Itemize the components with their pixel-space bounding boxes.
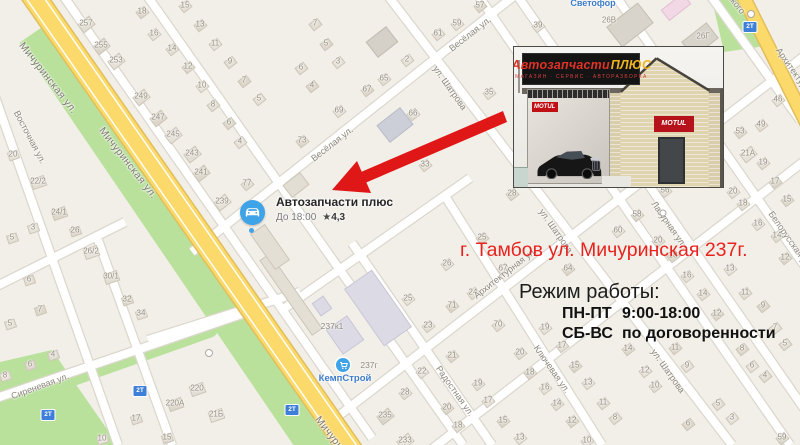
rating-star-icon: ★ (322, 212, 331, 223)
building-number: 15 (163, 433, 172, 442)
building-number: 11 (741, 288, 749, 297)
building-number: 18 (526, 368, 535, 377)
building-number: 26Г (696, 32, 709, 41)
building-number: 20 (729, 187, 738, 196)
schedule-hours: 9:00-18:00 (622, 304, 700, 324)
building-number: 11 (211, 39, 219, 48)
building-number: 5 (10, 233, 14, 242)
building-number: 4 (763, 371, 767, 380)
building-number: 77 (243, 179, 252, 188)
building-number: 17 (132, 414, 141, 423)
building-number: 46 (774, 95, 783, 104)
car-brand-logos-strip (528, 90, 610, 98)
building-number: 7 (38, 305, 42, 314)
building-number: 71 (448, 301, 457, 310)
building-number: 59 (778, 433, 787, 442)
store-sign: АвтозапчастиПЛЮС МАГАЗИН · СЕРВИС · АВТО… (522, 53, 640, 84)
building-number: 257 (79, 19, 92, 28)
store-sign-accent: ПЛЮС (611, 58, 651, 72)
map-pin-tail (249, 228, 254, 233)
area-label: 237г (360, 360, 377, 370)
building-number: 26 (71, 226, 80, 235)
motul-banner-logo: MOTUL (532, 102, 558, 112)
schedule-title: Режим работы: (519, 281, 660, 304)
poi-title: Автозапчасти плюс (276, 196, 393, 209)
building-number: 73 (298, 136, 307, 145)
building-number: 6 (299, 63, 303, 72)
building-number: 249 (134, 92, 147, 101)
building-number: 13 (584, 378, 593, 387)
junction-dot (205, 349, 213, 357)
building-number: 11 (599, 398, 607, 407)
building-number: 15 (783, 195, 792, 204)
car-icon (245, 205, 260, 220)
building-number: 12 (781, 253, 790, 262)
store-sign-main: Автозапчасти (513, 58, 610, 72)
building-number: 22 (418, 367, 427, 376)
photo-teal-fence (514, 167, 528, 188)
building-number: 17 (484, 396, 493, 405)
traffic-poi-dot (747, 10, 755, 18)
building-number: 4 (310, 81, 314, 90)
poi-rating: 4,3 (331, 212, 345, 223)
building-number: 20 (516, 348, 525, 357)
building-number: 21Б (209, 410, 223, 419)
building-number: 58 (633, 210, 642, 219)
building-number: 18 (454, 421, 463, 430)
building-number: 14 (168, 44, 177, 53)
building-number: 28 (401, 388, 410, 397)
building-number: 23 (424, 321, 433, 330)
poi-kempstroy[interactable]: КемпСтрой (319, 373, 372, 384)
building-number: 22/2 (30, 177, 46, 186)
building-number: 26 (443, 259, 452, 268)
building-number: 12 (641, 366, 650, 375)
building-number: 15 (571, 361, 580, 370)
building-number: 235 (378, 411, 391, 420)
building-number: 12 (568, 416, 577, 425)
building-number: 34 (137, 309, 146, 318)
building-number: 5 (783, 339, 787, 348)
building-number: 9 (228, 57, 232, 66)
building-number: 14 (624, 344, 633, 353)
building-number: 239 (215, 197, 228, 206)
building-number: 61 (434, 29, 443, 38)
building-number: 30/1 (103, 272, 119, 281)
building-number: 10 (98, 434, 107, 443)
building-number: 253 (109, 56, 122, 65)
building-number: 66 (409, 109, 418, 118)
shopping-cart-icon (339, 361, 348, 370)
building-number: 6 (28, 360, 32, 369)
map-pin-autoparts[interactable] (240, 200, 265, 225)
building-number: 16 (754, 219, 763, 228)
building-number: 6 (227, 118, 231, 127)
photo-door-window (658, 137, 685, 185)
building-number: 70 (494, 320, 503, 329)
schedule-hours: по договоренности (622, 324, 776, 344)
building-number: 26/2 (83, 247, 99, 256)
building-number: 32 (123, 295, 132, 304)
building-number: 2 (405, 55, 409, 64)
building-number: 57 (476, 1, 485, 10)
storefront-photo: MOTUL MOTUL АвтозапчастиПЛЮС МАГАЗИН · (513, 46, 724, 188)
photo-ad-banner: MOTUL (527, 89, 611, 184)
building-number: 241 (194, 168, 207, 177)
building-number: 220А (166, 399, 185, 408)
building-number: 60 (614, 226, 623, 235)
route-badge: 2Т (133, 385, 148, 397)
building-number: 3 (31, 223, 35, 232)
building-number: 19 (541, 323, 550, 332)
building-number: 59 (453, 19, 462, 28)
junction-dot (660, 210, 667, 217)
schedule-days: ПН-ПТ (562, 304, 622, 324)
building-number: 17 (771, 177, 780, 186)
building-number: 255 (94, 41, 107, 50)
poi-open-hours: До 18:00 (276, 212, 316, 223)
route-badge: 2Т (743, 21, 758, 33)
building-number: 10 (583, 436, 592, 445)
building-number: 39 (534, 21, 543, 30)
route-badge: 2Т (41, 409, 56, 421)
building-number: 6 (750, 361, 754, 370)
building-number: 53 (736, 127, 745, 136)
kempstroy-poi-icon[interactable] (336, 358, 350, 372)
building-number: 5 (716, 399, 720, 408)
building-number: 7 (242, 76, 246, 85)
area-label: 237к1 (321, 321, 344, 331)
schedule-rows: ПН-ПТ 9:00-18:00 СБ-ВС по договоренности (562, 304, 776, 344)
route-badge: 2Т (285, 404, 300, 416)
building-number: 67 (363, 85, 372, 94)
building-number: 8 (740, 344, 744, 353)
motul-wall-sign: MOTUL (654, 116, 694, 133)
building-number: 8 (3, 371, 7, 380)
building-number: 35 (485, 88, 494, 97)
building-number: 64 (564, 264, 573, 273)
map-canvas[interactable]: 2572552532492472452432412397718161412108… (0, 0, 800, 445)
store-sign-subtitle: МАГАЗИН · СЕРВИС · АВТОРАЗБОРКА (515, 74, 647, 80)
building-number: 7 (313, 19, 317, 28)
building-number: 4 (238, 137, 242, 146)
building-number: 8 (613, 413, 617, 422)
building-number: 245 (166, 130, 179, 139)
building-number: 5 (257, 94, 261, 103)
building-number: 18 (138, 7, 147, 16)
building-number: 28 (508, 189, 517, 198)
poi-svetofor[interactable]: Светофор (570, 0, 615, 8)
building-number: 26В (602, 16, 616, 25)
building-number: 16 (150, 29, 159, 38)
schedule-days: СБ-ВС (562, 324, 622, 344)
building-number: 13 (196, 20, 205, 29)
building-number: 20 (9, 150, 18, 159)
building-number: 6 (27, 275, 31, 284)
building-number: 49 (757, 120, 766, 129)
building-number: 12 (184, 62, 193, 71)
building-number: 10 (651, 381, 660, 390)
building-number: 3 (336, 57, 340, 66)
building-number: 243 (185, 149, 198, 158)
building-number: 14 (553, 399, 562, 408)
schedule-row-weekdays: ПН-ПТ 9:00-18:00 (562, 304, 776, 324)
building-number: 5 (8, 319, 12, 328)
building-number: 15 (499, 416, 508, 425)
map-pin-label[interactable]: Автозапчасти плюс До 18:00★4,3 (276, 196, 393, 223)
building-number: 21 (448, 351, 457, 360)
building-number: 3 (730, 413, 734, 422)
building-number: 10 (198, 81, 207, 90)
building-number: 6 (686, 419, 690, 428)
building-number: 69 (335, 106, 344, 115)
building-number: 20 (443, 403, 452, 412)
address-annotation: г. Тамбов ул. Мичуринская 237г. (460, 239, 748, 262)
building-number: 233 (398, 436, 411, 445)
black-car-image (534, 125, 604, 179)
building-number: 247 (151, 113, 164, 122)
building-number: 19 (474, 379, 483, 388)
building-number: 13 (726, 264, 735, 273)
building-number: 4 (51, 350, 55, 359)
building-number: 21А (741, 149, 755, 158)
building-number: 8 (211, 100, 215, 109)
building-number: 13 (516, 433, 525, 442)
photo-white-fence (602, 176, 631, 187)
building-number: 5 (324, 39, 328, 48)
building-number: 24/1 (51, 208, 67, 217)
building-number: 14 (699, 289, 708, 298)
building-number: 18 (739, 199, 748, 208)
building-number: 19 (759, 158, 768, 167)
building-number: 220 (190, 384, 203, 393)
building-number: 33 (421, 160, 430, 169)
building-number: 25 (404, 294, 413, 303)
building-number: 16 (683, 271, 692, 280)
building-number: 16 (541, 383, 550, 392)
schedule-row-weekend: СБ-ВС по договоренности (562, 324, 776, 344)
photo-right-edge (720, 89, 723, 187)
building-number: 15 (181, 1, 190, 10)
building-number: 9 (685, 361, 689, 370)
building-number: 65 (380, 74, 389, 83)
